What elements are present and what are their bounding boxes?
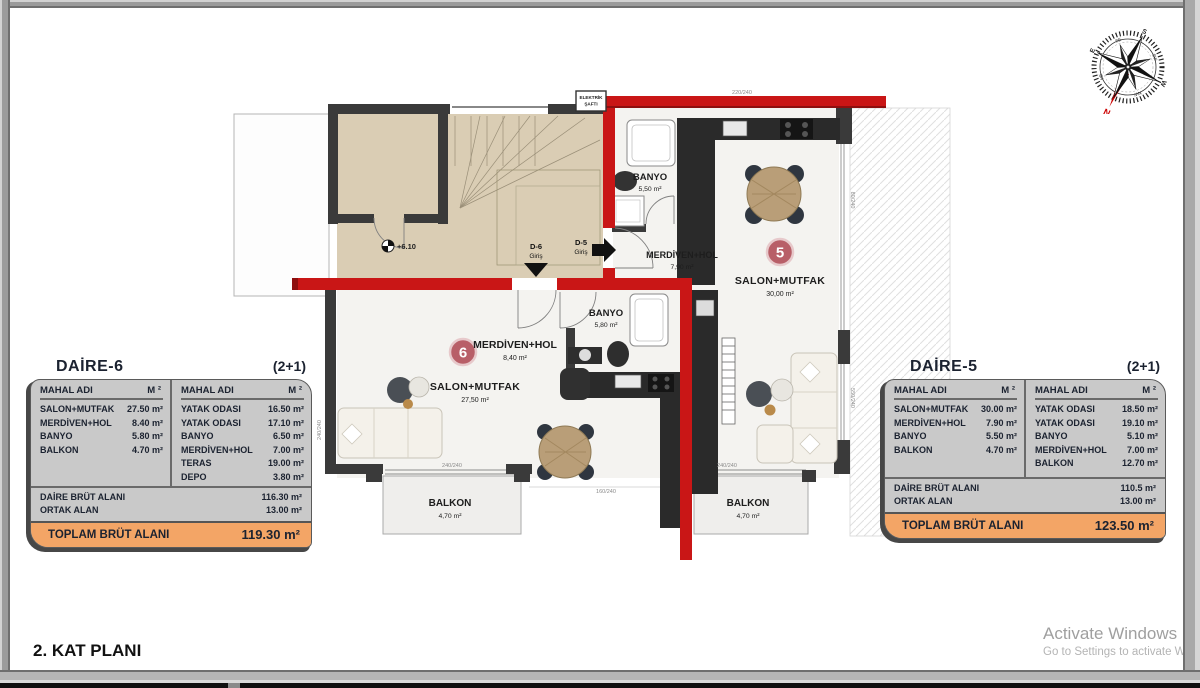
- window-frame-right[interactable]: [1183, 0, 1200, 676]
- col-header-name: MAHAL ADI: [181, 385, 234, 396]
- table-row: DEPO3.80 m²: [181, 471, 304, 485]
- taskbar-edge[interactable]: [0, 683, 1200, 688]
- electric-shaft-label1: ELEKTRİK: [580, 94, 604, 100]
- col-header-name: MAHAL ADI: [894, 385, 947, 396]
- table-row: YATAK ODASI16.50 m²: [181, 403, 304, 417]
- room-name: BALKON: [894, 444, 933, 458]
- daire5-total-row: TOPLAM BRÜT ALANI 123.50 m²: [885, 512, 1165, 538]
- room-area: 27.50 m²: [127, 403, 163, 417]
- daire5-type: (2+1): [1127, 358, 1160, 374]
- compass-w: W: [1158, 79, 1167, 88]
- room-area: 30.00 m²: [981, 403, 1017, 417]
- unit5-salon-area: 30,00 m²: [766, 291, 794, 298]
- unit6-number: 6: [459, 345, 467, 362]
- unit6-badge: 6: [450, 339, 476, 365]
- col-header-name: MAHAL ADI: [40, 385, 93, 396]
- summary-value: 13.00 m²: [266, 504, 302, 517]
- total-label: TOPLAM BRÜT ALANI: [902, 520, 1023, 532]
- electric-shaft-box: ELEKTRİK ŞAFTI: [576, 91, 606, 111]
- room-name: BALKON: [40, 444, 79, 458]
- room-area: 5.10 m²: [1127, 430, 1158, 444]
- room-name: BANYO: [40, 430, 73, 444]
- unit5-dining-table: [745, 165, 804, 224]
- room-area: 7.00 m²: [273, 444, 304, 458]
- room-area: 8.40 m²: [132, 417, 163, 431]
- unit5-banyo-area: 5,50 m²: [638, 186, 662, 193]
- table-row: BANYO6.50 m²: [181, 430, 304, 444]
- window-frame-top: [0, 0, 1200, 8]
- unit6-balkon-label: BALKON: [429, 498, 472, 509]
- dim-between-balconies: 160/240: [596, 489, 616, 495]
- room-area: 5.50 m²: [986, 430, 1017, 444]
- room-area: 19.00 m²: [268, 457, 304, 471]
- level-marker-label: +6.10: [397, 242, 416, 251]
- table-row: BALKON4.70 m²: [894, 444, 1017, 458]
- unit6-banyo-label: BANYO: [589, 308, 623, 319]
- room-area: 17.10 m²: [268, 417, 304, 431]
- room-name: BANYO: [894, 430, 927, 444]
- unit5-banyo-label: BANYO: [633, 172, 667, 183]
- summary-value: 116.30 m²: [261, 491, 302, 504]
- unit6-salon-label: SALON+MUTFAK: [430, 381, 520, 393]
- watermark-line2: Go to Settings to activate Window: [1043, 646, 1200, 658]
- room-area: 3.80 m²: [273, 471, 304, 485]
- room-name: BALKON: [1035, 457, 1074, 471]
- room-name: TERAS: [181, 457, 212, 471]
- entry-d6-sublabel: Giriş: [529, 253, 543, 260]
- room-name: BANYO: [181, 430, 214, 444]
- room-name: MERDİVEN+HOL: [894, 417, 966, 431]
- daire6-type: (2+1): [273, 358, 306, 374]
- summary-row: ORTAK ALAN13.00 m²: [40, 504, 302, 517]
- dim-left-wall: 240/240: [317, 420, 323, 440]
- unit6-salon-area: 27,50 m²: [461, 397, 489, 404]
- table-row: BANYO5.50 m²: [894, 430, 1017, 444]
- table-row: MERDİVEN+HOL7.00 m²: [181, 444, 304, 458]
- unit5-merdiven-label: MERDİVEN+HOL: [646, 250, 718, 260]
- daire6-info-table: DAİRE-6 (2+1) MAHAL ADI M ² SALON+MUTFAK…: [30, 358, 312, 548]
- room-name: MERDİVEN+HOL: [40, 417, 112, 431]
- daire5-info-table: DAİRE-5 (2+1) MAHAL ADI M ² SALON+MUTFAK…: [884, 358, 1166, 539]
- unit5-balkon-label: BALKON: [727, 498, 770, 509]
- room-area: 6.50 m²: [273, 430, 304, 444]
- col-header-area: M ²: [1001, 385, 1015, 396]
- window-frame-bottom: [0, 670, 1200, 683]
- summary-name: DAİRE BRÜT ALANI: [894, 482, 979, 495]
- dim-top: 220/240: [732, 90, 752, 96]
- summary-row: ORTAK ALAN13.00 m²: [894, 495, 1156, 508]
- dim-right-lower: 550/240: [849, 388, 855, 408]
- table-row: TERAS19.00 m²: [181, 457, 304, 471]
- dim-right-upper: 80/240: [849, 192, 855, 209]
- col-header-area: M ²: [1142, 385, 1156, 396]
- compass-n: N: [1102, 106, 1112, 114]
- room-name: YATAK ODASI: [181, 403, 241, 417]
- daire5-panel: MAHAL ADI M ² SALON+MUTFAK30.00 m² MERDİ…: [884, 379, 1166, 539]
- total-value: 123.50 m²: [1095, 518, 1154, 533]
- table-row: BALKON12.70 m²: [1035, 457, 1158, 471]
- terrace-room: [234, 114, 329, 296]
- room-name: BANYO: [1035, 430, 1068, 444]
- table-row: YATAK ODASI18.50 m²: [1035, 403, 1158, 417]
- table-row: BALKON4.70 m²: [40, 444, 163, 458]
- unit5-badge: 5: [767, 239, 793, 265]
- entry-d5-sublabel: Giriş: [574, 249, 588, 256]
- daire6-panel: MAHAL ADI M ² SALON+MUTFAK27.50 m² MERDİ…: [30, 379, 312, 548]
- unit6-balkon-area: 4,70 m²: [438, 513, 462, 520]
- compass-s: S: [1141, 28, 1148, 36]
- room-name: SALON+MUTFAK: [894, 403, 968, 417]
- unit5-merdiven-area: 7,90 m²: [670, 264, 694, 271]
- room-area: 4.70 m²: [986, 444, 1017, 458]
- total-value: 119.30 m²: [241, 527, 300, 542]
- unit5-stair-ladder: [722, 338, 735, 424]
- summary-row: DAİRE BRÜT ALANI110.5 m²: [894, 482, 1156, 495]
- room-area: 5.80 m²: [132, 430, 163, 444]
- unit6-merdiven-area: 8,40 m²: [503, 355, 527, 362]
- table-row: MERDİVEN+HOL7.90 m²: [894, 417, 1017, 431]
- room-area: 16.50 m²: [268, 403, 304, 417]
- summary-name: DAİRE BRÜT ALANI: [40, 491, 125, 504]
- col-header-name: MAHAL ADI: [1035, 385, 1088, 396]
- watermark-line1: Activate Windows: [1043, 624, 1200, 644]
- page-title: 2. KAT PLANI: [33, 641, 141, 661]
- summary-name: ORTAK ALAN: [894, 495, 953, 508]
- unit6-dining-table: [537, 424, 594, 480]
- compass-e: E: [1089, 47, 1097, 54]
- col-header-area: M ²: [147, 385, 161, 396]
- daire5-title: DAİRE-5: [910, 358, 978, 376]
- floorplan-drawing: ELEKTRİK ŞAFTI +6.10 D-6 Giriş D-5 Giriş…: [228, 84, 958, 566]
- room-area: 19.10 m²: [1122, 417, 1158, 431]
- electric-shaft-label2: ŞAFTI: [584, 102, 597, 107]
- table-row: SALON+MUTFAK30.00 m²: [894, 403, 1017, 417]
- table-row: BANYO5.10 m²: [1035, 430, 1158, 444]
- room-name: DEPO: [181, 471, 207, 485]
- taskbar-notch: [228, 683, 240, 688]
- summary-value: 110.5 m²: [1120, 482, 1156, 495]
- table-row: YATAK ODASI19.10 m²: [1035, 417, 1158, 431]
- room-area: 12.70 m²: [1122, 457, 1158, 471]
- table-row: MERDİVEN+HOL8.40 m²: [40, 417, 163, 431]
- dim-balcony-left: 240/240: [442, 463, 462, 469]
- table-row: MERDİVEN+HOL7.00 m²: [1035, 444, 1158, 458]
- room-area: 7.00 m²: [1127, 444, 1158, 458]
- daire6-title: DAİRE-6: [56, 358, 124, 376]
- room-name: YATAK ODASI: [181, 417, 241, 431]
- room-area: 18.50 m²: [1122, 403, 1158, 417]
- table-row: SALON+MUTFAK27.50 m²: [40, 403, 163, 417]
- window-frame-left: [0, 0, 10, 676]
- room-name: YATAK ODASI: [1035, 403, 1095, 417]
- table-row: YATAK ODASI17.10 m²: [181, 417, 304, 431]
- unit5-number: 5: [776, 245, 784, 262]
- unit6-merdiven-label: MERDİVEN+HOL: [473, 338, 557, 351]
- unit5-balkon-area: 4,70 m²: [736, 513, 760, 520]
- summary-row: DAİRE BRÜT ALANI116.30 m²: [40, 491, 302, 504]
- entry-d5-label: D-5: [575, 238, 587, 247]
- room-name: MERDİVEN+HOL: [1035, 444, 1107, 458]
- total-label: TOPLAM BRÜT ALANI: [48, 529, 169, 541]
- col-header-area: M ²: [288, 385, 302, 396]
- dim-balcony-right: 240/240: [717, 463, 737, 469]
- room-area: 7.90 m²: [986, 417, 1017, 431]
- level-marker: +6.10: [382, 240, 416, 252]
- summary-name: ORTAK ALAN: [40, 504, 99, 517]
- unit6-sofa: [338, 408, 442, 458]
- room-name: YATAK ODASI: [1035, 417, 1095, 431]
- activate-windows-watermark: Activate Windows Go to Settings to activ…: [1043, 624, 1200, 658]
- unit5-salon-label: SALON+MUTFAK: [735, 275, 825, 287]
- stairwell: [337, 114, 603, 278]
- room-area: 4.70 m²: [132, 444, 163, 458]
- floorplan-page: ELEKTRİK ŞAFTI +6.10 D-6 Giriş D-5 Giriş…: [0, 0, 1200, 688]
- daire6-total-row: TOPLAM BRÜT ALANI 119.30 m²: [31, 521, 311, 547]
- table-row: BANYO5.80 m²: [40, 430, 163, 444]
- unit6-banyo-area: 5,80 m²: [594, 322, 618, 329]
- room-name: SALON+MUTFAK: [40, 403, 114, 417]
- summary-value: 13.00 m²: [1120, 495, 1156, 508]
- compass-icon: NE SE SW NW S W E N: [1085, 20, 1173, 114]
- room-name: MERDİVEN+HOL: [181, 444, 253, 458]
- entry-d6-label: D-6: [530, 242, 542, 251]
